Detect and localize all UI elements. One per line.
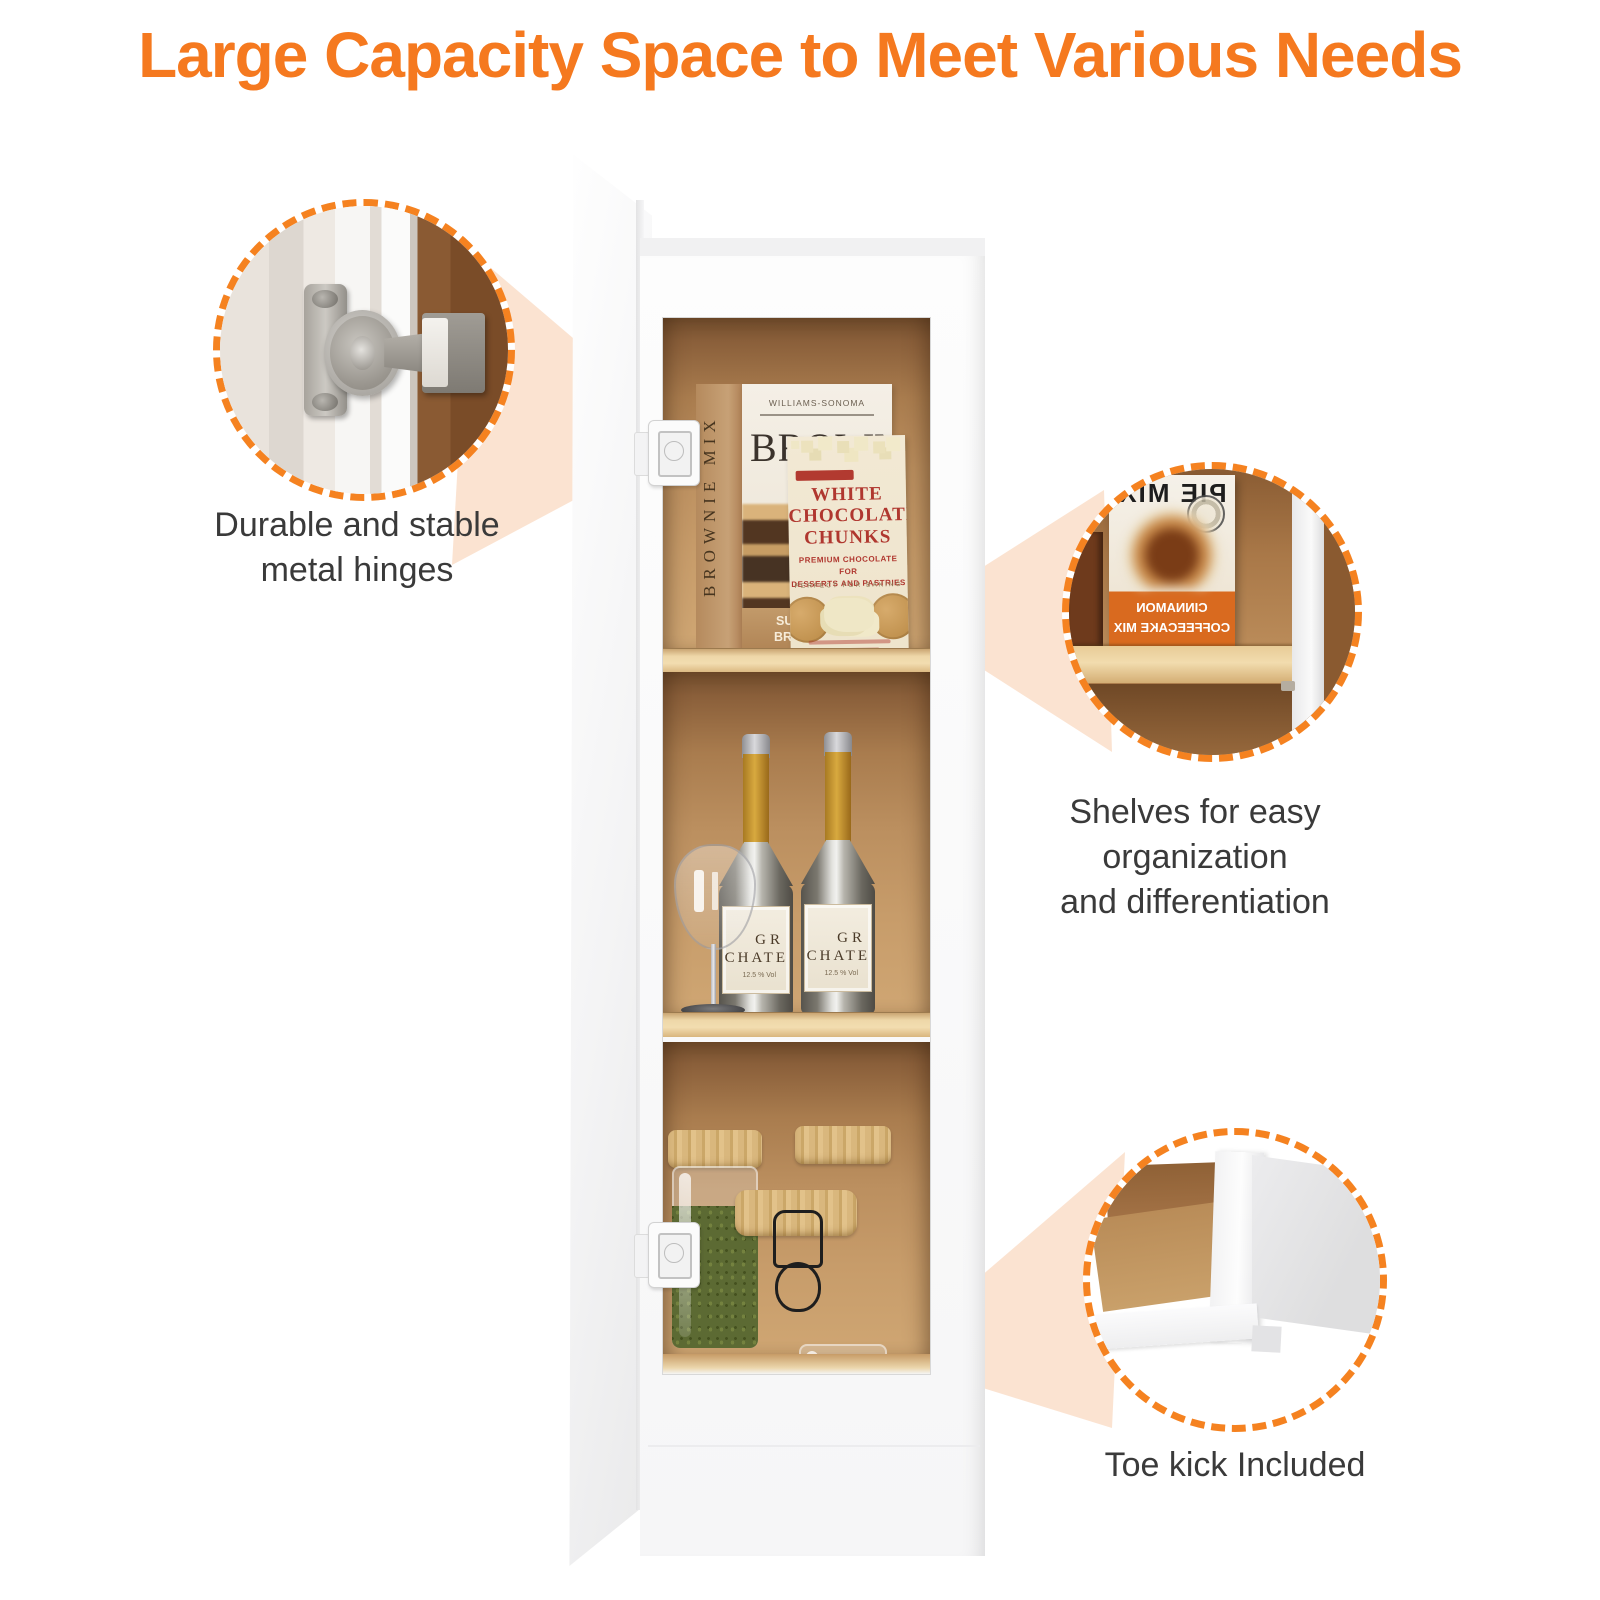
toekick-side-panel — [1252, 1155, 1380, 1335]
wine-label-text: 12.5 % Vol — [825, 970, 858, 977]
page-title: Large Capacity Space to Meet Various Nee… — [0, 18, 1600, 92]
cabinet-floor — [663, 1354, 930, 1374]
brownie-divider — [760, 414, 874, 416]
toekick-notch — [1252, 1326, 1282, 1354]
partial-box — [1069, 532, 1103, 646]
shelf-pin — [1281, 681, 1295, 691]
cabinet-toe-seam — [648, 1445, 980, 1447]
cookie-image — [870, 593, 909, 640]
hinge-callout-circle — [213, 199, 515, 501]
wine-label: GR CHATE 12.5 % Vol — [804, 904, 872, 992]
wine-glass-stem — [711, 944, 716, 1006]
shelf-board-1 — [663, 648, 930, 673]
fine-print-line — [808, 639, 891, 644]
wine-glass — [668, 844, 760, 1019]
wine-label-text: CHATE — [807, 948, 870, 965]
compartment-top: BROWNIE MIX WILLIAMS-SONOMA BROWNI SUGAR… — [663, 318, 930, 648]
pie-photo — [1117, 506, 1228, 588]
toekick-callout-circle — [1083, 1128, 1387, 1432]
chocolate-box-title: WHITE CHOCOLATE CHUNKS — [788, 483, 907, 549]
wine-glass-bowl — [674, 844, 756, 950]
cabinet-top-face — [640, 238, 985, 256]
bottle-shoulder — [801, 840, 875, 884]
door-hinge-bottom — [648, 1222, 700, 1288]
brownie-box-side: BROWNIE MIX — [696, 384, 742, 652]
wine-bottle: GR CHATE 12.5 % Vol — [800, 732, 876, 1014]
shelf-board-2 — [663, 1012, 930, 1037]
compartment-middle: GR CHATE 12.5 % Vol GR CHATE 12.5 % Vol — [663, 672, 930, 1012]
frame-strip — [1292, 469, 1323, 755]
hinge-caption: Durable and stable metal hinges — [107, 503, 607, 593]
brownie-side-label: BROWNIE MIX — [700, 396, 738, 616]
chocolate-box-banner — [796, 470, 854, 481]
wine-glass-highlight — [694, 870, 704, 912]
clamp-loop — [775, 1262, 821, 1312]
brownie-brand-label: WILLIAMS-SONOMA — [742, 398, 892, 408]
hinge-screw — [664, 1243, 684, 1263]
chocolate-chunk-scatter — [791, 441, 799, 449]
pie-mix-box: PIE MIX CINNAMON COFFEECAKE MIX — [1109, 475, 1235, 647]
white-chocolate-chunks-box: WHITE CHOCOLATE CHUNKS PREMIUM CHOCOLATE… — [787, 435, 909, 667]
clamp-bail — [773, 1210, 823, 1268]
wine-label-text: GR — [837, 930, 866, 947]
toekick-caption: Toe kick Included — [985, 1443, 1485, 1488]
bottle-body: GR CHATE 12.5 % Vol — [801, 882, 875, 1014]
product-feature-infographic: Large Capacity Space to Meet Various Nee… — [0, 0, 1600, 1600]
coffeecake-label-mirrored: CINNAMON COFFEECAKE MIX — [1109, 598, 1235, 637]
shelves-callout-circle: PIE MIX CINNAMON COFFEECAKE MIX — [1062, 462, 1362, 762]
interior-right — [1324, 469, 1355, 755]
hinge-mount-face — [422, 318, 448, 387]
chunk-pile-image — [824, 598, 875, 633]
shelves-caption: Shelves for easy organization and differ… — [945, 790, 1445, 925]
hinge-screw — [312, 290, 338, 308]
door-hinge-top — [648, 420, 700, 486]
jar-lid — [795, 1126, 891, 1164]
jar-lid — [668, 1130, 762, 1168]
cabinet-opening: BROWNIE MIX WILLIAMS-SONOMA BROWNI SUGAR… — [663, 318, 930, 1374]
bottle-foil — [825, 752, 851, 844]
bottle-foil — [743, 754, 769, 846]
compartment-bottom: Salt — [663, 1042, 930, 1354]
hinge-screw — [664, 441, 684, 461]
